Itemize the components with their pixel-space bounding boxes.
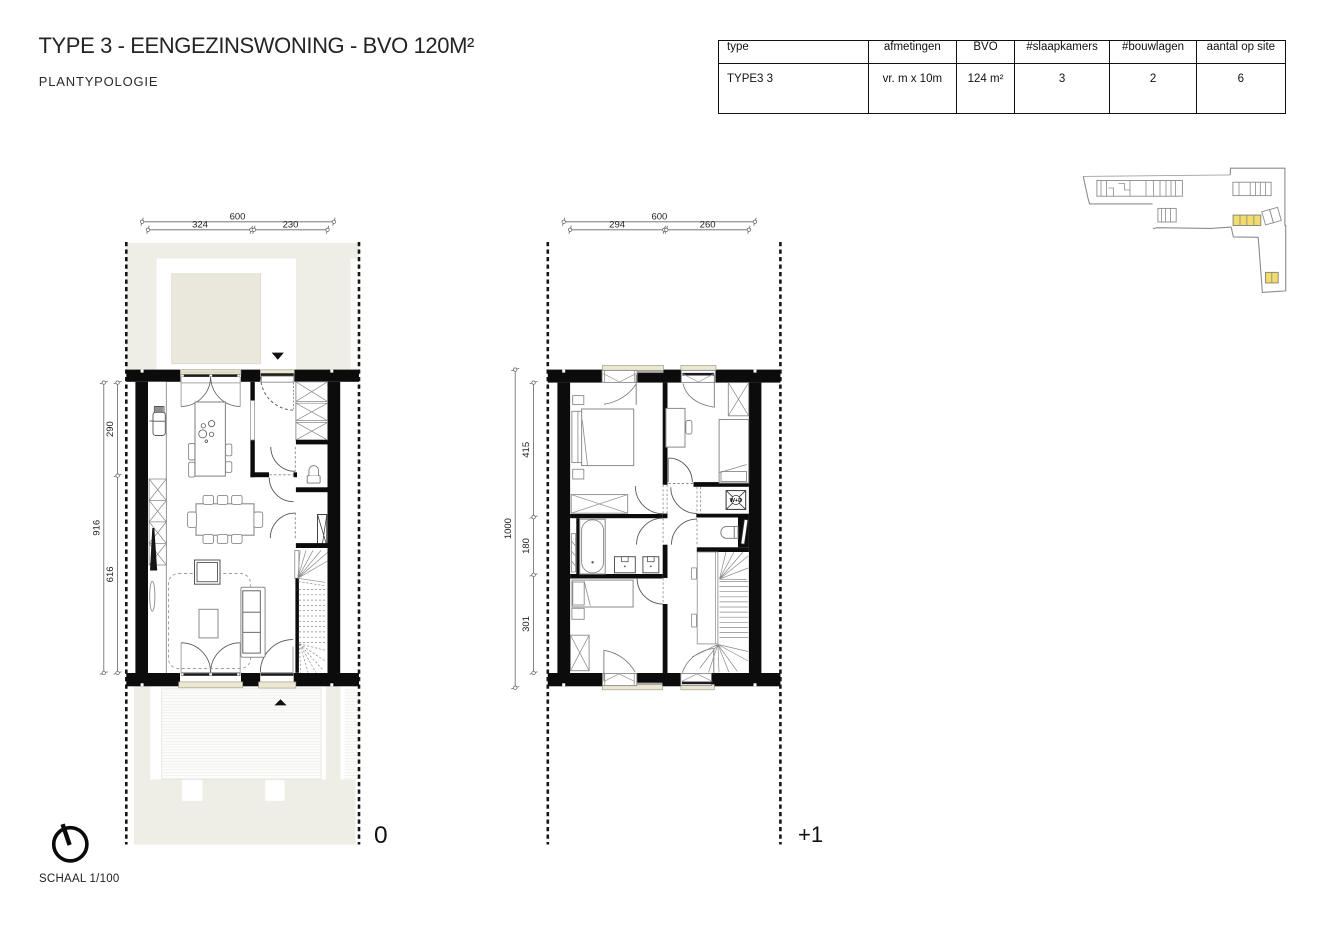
svg-text:260: 260	[700, 220, 716, 231]
svg-text:916: 916	[91, 520, 102, 536]
svg-text:324: 324	[192, 220, 208, 231]
svg-text:600: 600	[651, 212, 667, 223]
svg-text:290: 290	[105, 421, 116, 437]
svg-text:180: 180	[521, 538, 532, 554]
svg-text:1000: 1000	[503, 518, 514, 539]
svg-text:616: 616	[105, 566, 116, 582]
svg-text:301: 301	[521, 616, 532, 632]
svg-text:415: 415	[521, 442, 532, 458]
svg-text:W+D: W+D	[730, 498, 743, 504]
svg-text:294: 294	[609, 220, 625, 231]
svg-text:230: 230	[283, 220, 299, 231]
svg-text:600: 600	[230, 212, 246, 223]
